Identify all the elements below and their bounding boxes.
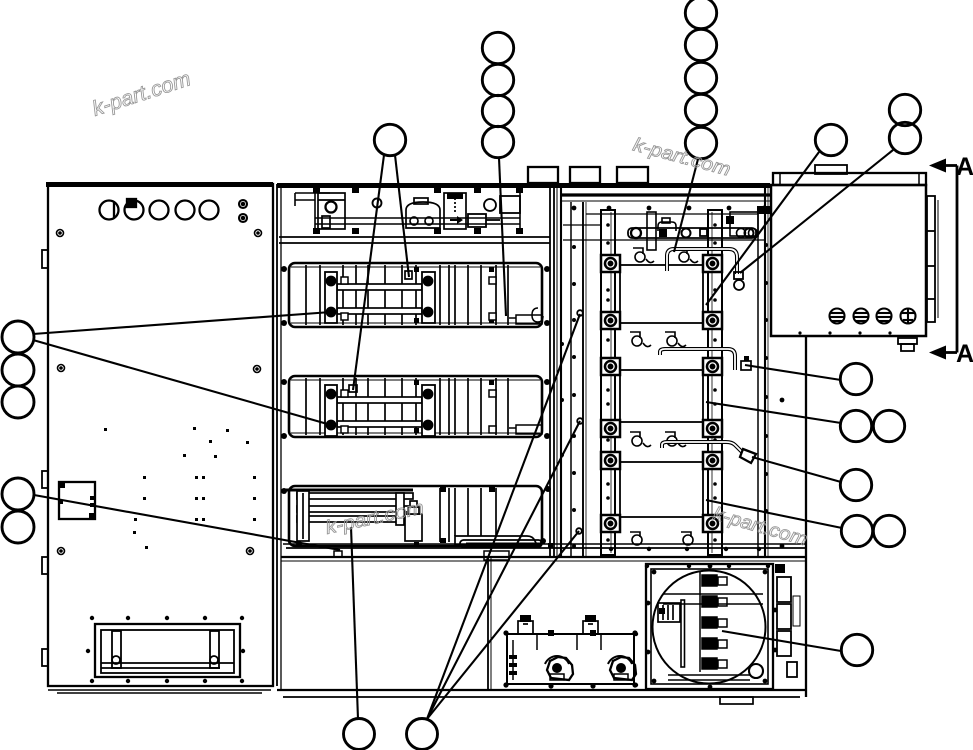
svg-text:A: A xyxy=(956,340,973,368)
svg-text:A: A xyxy=(956,153,973,181)
